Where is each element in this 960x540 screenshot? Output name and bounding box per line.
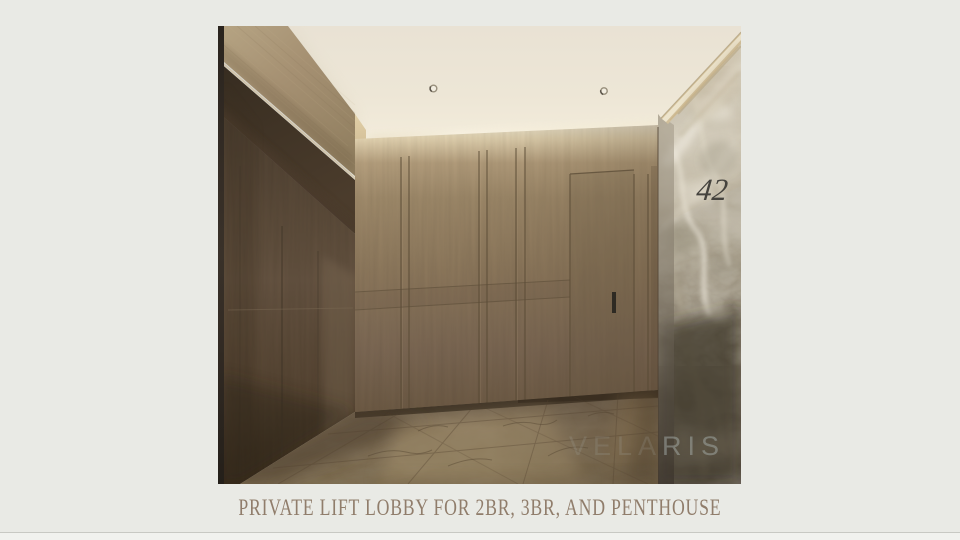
svg-text:42: 42: [695, 172, 730, 207]
